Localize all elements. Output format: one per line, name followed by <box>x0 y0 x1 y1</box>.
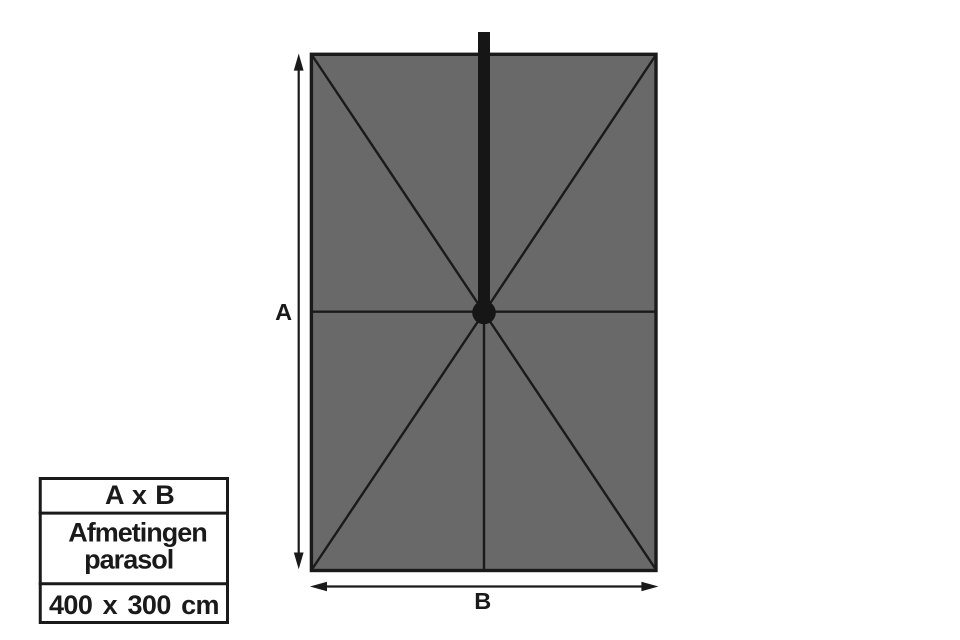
svg-text:400 x 300 cm: 400 x 300 cm <box>49 590 219 620</box>
svg-text:A x B: A x B <box>105 480 174 510</box>
svg-text:parasol: parasol <box>84 545 173 575</box>
svg-text:A: A <box>275 299 292 325</box>
svg-text:B: B <box>474 588 491 614</box>
svg-text:Afmetingen: Afmetingen <box>68 518 207 548</box>
